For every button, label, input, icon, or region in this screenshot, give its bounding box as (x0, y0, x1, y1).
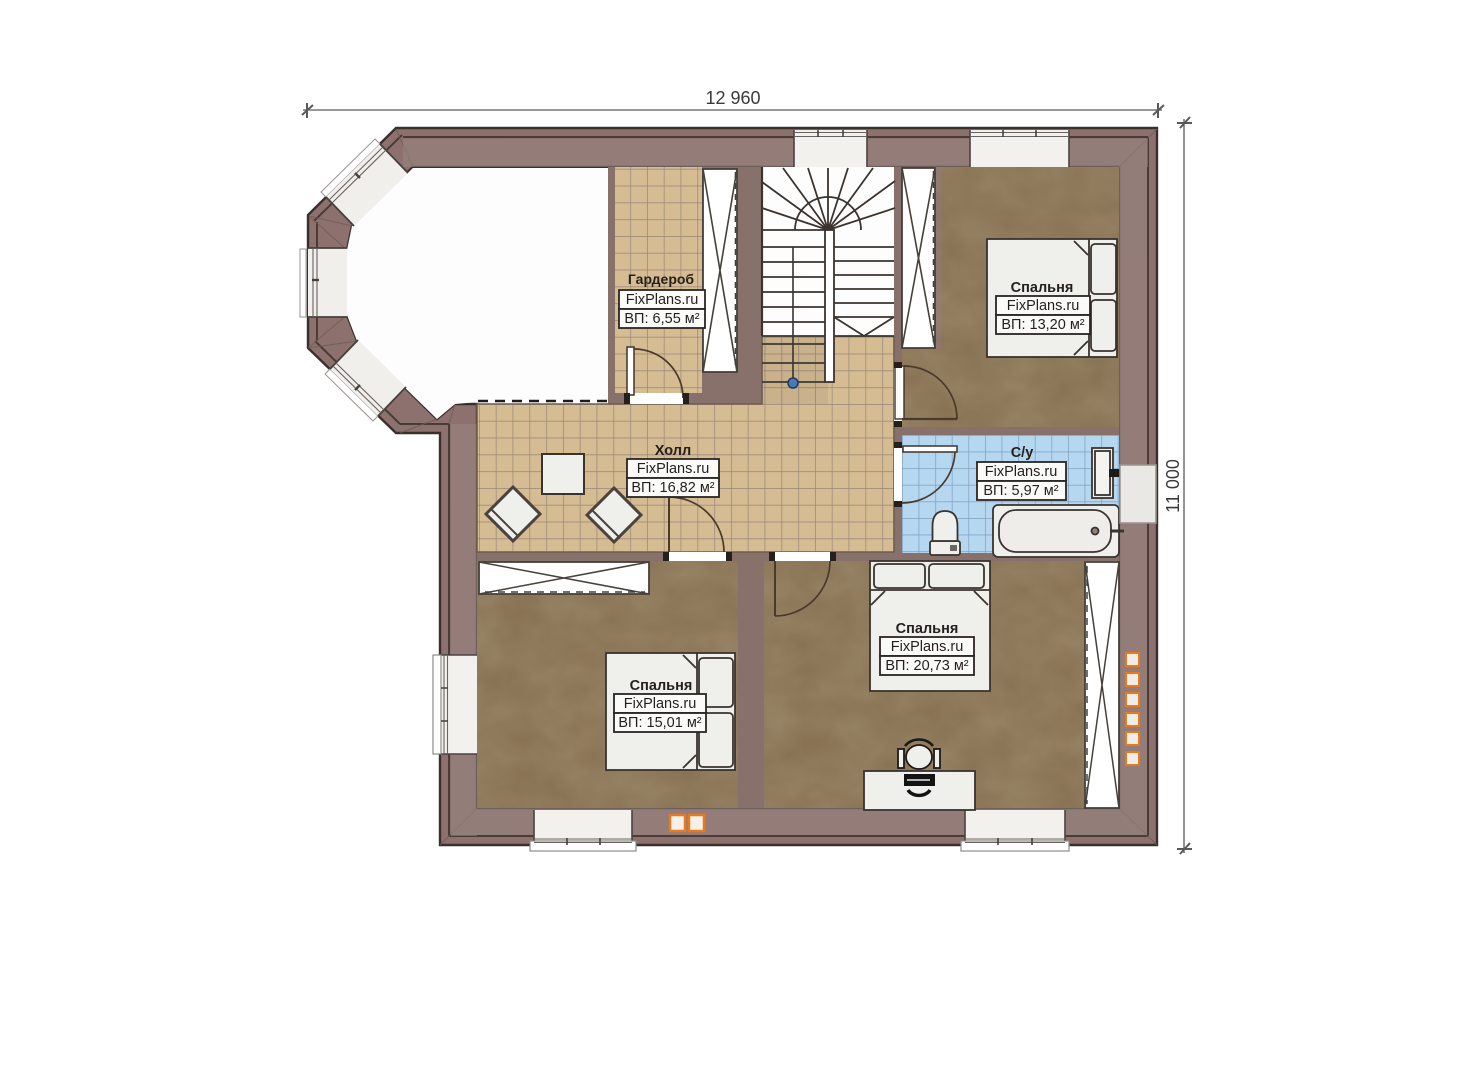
svg-text:Холл: Холл (655, 443, 691, 459)
svg-text:ВП: 5,97 м²: ВП: 5,97 м² (983, 483, 1058, 499)
svg-text:FixPlans.ru: FixPlans.ru (624, 696, 697, 712)
svg-text:Спальня: Спальня (896, 621, 959, 637)
svg-text:Гардероб: Гардероб (628, 271, 695, 287)
svg-text:FixPlans.ru: FixPlans.ru (637, 461, 710, 477)
svg-text:12 960: 12 960 (705, 88, 760, 108)
svg-text:ВП: 13,20 м²: ВП: 13,20 м² (1001, 317, 1084, 333)
svg-text:11 000: 11 000 (1163, 459, 1183, 513)
svg-text:FixPlans.ru: FixPlans.ru (1007, 298, 1080, 314)
svg-text:FixPlans.ru: FixPlans.ru (891, 639, 964, 655)
svg-text:ВП: 6,55 м²: ВП: 6,55 м² (624, 311, 699, 327)
svg-text:ВП: 15,01 м²: ВП: 15,01 м² (618, 715, 701, 731)
svg-text:С/у: С/у (1011, 445, 1034, 461)
svg-text:Спальня: Спальня (1011, 280, 1074, 296)
svg-text:ВП: 20,73 м²: ВП: 20,73 м² (885, 658, 968, 674)
svg-text:FixPlans.ru: FixPlans.ru (626, 292, 699, 308)
svg-text:FixPlans.ru: FixPlans.ru (985, 464, 1058, 480)
svg-text:ВП: 16,82 м²: ВП: 16,82 м² (631, 480, 714, 496)
svg-text:Спальня: Спальня (630, 678, 693, 694)
